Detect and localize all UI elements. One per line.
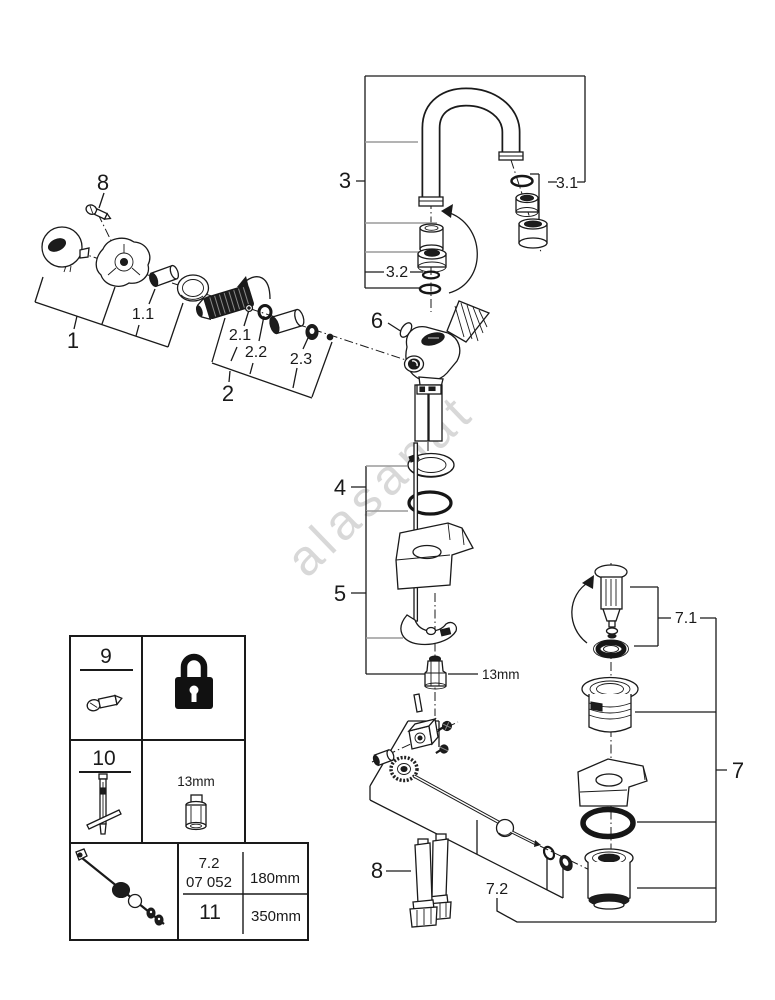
cartridge-small-parts xyxy=(246,305,333,340)
watermark-text: alasanat xyxy=(275,382,484,587)
table-length-180: 180mm xyxy=(250,870,300,887)
table-length-350: 350mm xyxy=(251,908,301,925)
drain-o-ring xyxy=(583,810,633,837)
socket-icon xyxy=(186,795,206,830)
mounting-shank xyxy=(415,385,442,441)
label-8-bottom: 8 xyxy=(371,858,383,883)
bracket-7-1 xyxy=(630,587,716,646)
pop-up-rod-icon xyxy=(76,849,164,925)
handle-screw xyxy=(85,203,113,222)
label-7: 7 xyxy=(732,758,744,783)
label-3-2: 3.2 xyxy=(386,264,408,281)
drain-flange xyxy=(582,678,638,733)
label-4: 4 xyxy=(334,475,346,500)
label-2-1: 2.1 xyxy=(229,327,251,344)
padlock-icon xyxy=(175,657,213,709)
table-ref-7-2: 7.2 xyxy=(199,855,220,872)
plug-seal xyxy=(594,640,629,658)
label-1: 1 xyxy=(67,328,79,353)
label-3: 3 xyxy=(339,168,351,193)
horseshoe-washer xyxy=(401,615,456,644)
spout xyxy=(419,97,523,206)
mounting-nut xyxy=(425,656,446,689)
trim-ring xyxy=(178,275,209,301)
table-13mm: 13mm xyxy=(177,774,215,789)
label-5: 5 xyxy=(334,581,346,606)
rod-guide-block xyxy=(372,719,453,781)
drain-tailpiece xyxy=(585,849,633,909)
supply-hoses xyxy=(410,834,451,927)
label-3-1: 3.1 xyxy=(556,175,578,192)
table-item-11: 11 xyxy=(199,901,221,924)
label-6: 6 xyxy=(371,308,383,333)
label-1-1: 1.1 xyxy=(132,306,154,323)
drain-wedge xyxy=(578,759,647,806)
mounting-tool-icon xyxy=(87,774,121,834)
exploded-parts-diagram: alasanat xyxy=(0,0,775,1000)
hinge-pin xyxy=(414,694,422,712)
label-7-2: 7.2 xyxy=(486,881,508,898)
grub-screw-icon xyxy=(86,694,123,712)
label-2: 2 xyxy=(222,381,234,406)
label-7-1: 7.1 xyxy=(675,610,697,627)
valve-body xyxy=(398,301,489,387)
bracket-1 xyxy=(35,277,183,347)
mounting-wedge xyxy=(396,523,473,589)
spout-nut-and-seals xyxy=(418,224,446,293)
table-item-10: 10 xyxy=(92,747,115,770)
handle-cap xyxy=(42,227,89,272)
diagram-canvas: alasanat xyxy=(0,0,775,1000)
aerator-group xyxy=(512,176,548,248)
drain-plug xyxy=(595,565,627,638)
label-13mm-callout: 13mm xyxy=(482,667,520,682)
handle-knob xyxy=(96,238,150,286)
bracket-3 xyxy=(356,76,585,288)
label-2-3: 2.3 xyxy=(290,351,312,368)
table-item-9: 9 xyxy=(100,645,112,668)
table-order-code: 07 052 xyxy=(186,874,232,891)
label-8-top: 8 xyxy=(97,170,109,195)
label-2-2: 2.2 xyxy=(245,344,267,361)
